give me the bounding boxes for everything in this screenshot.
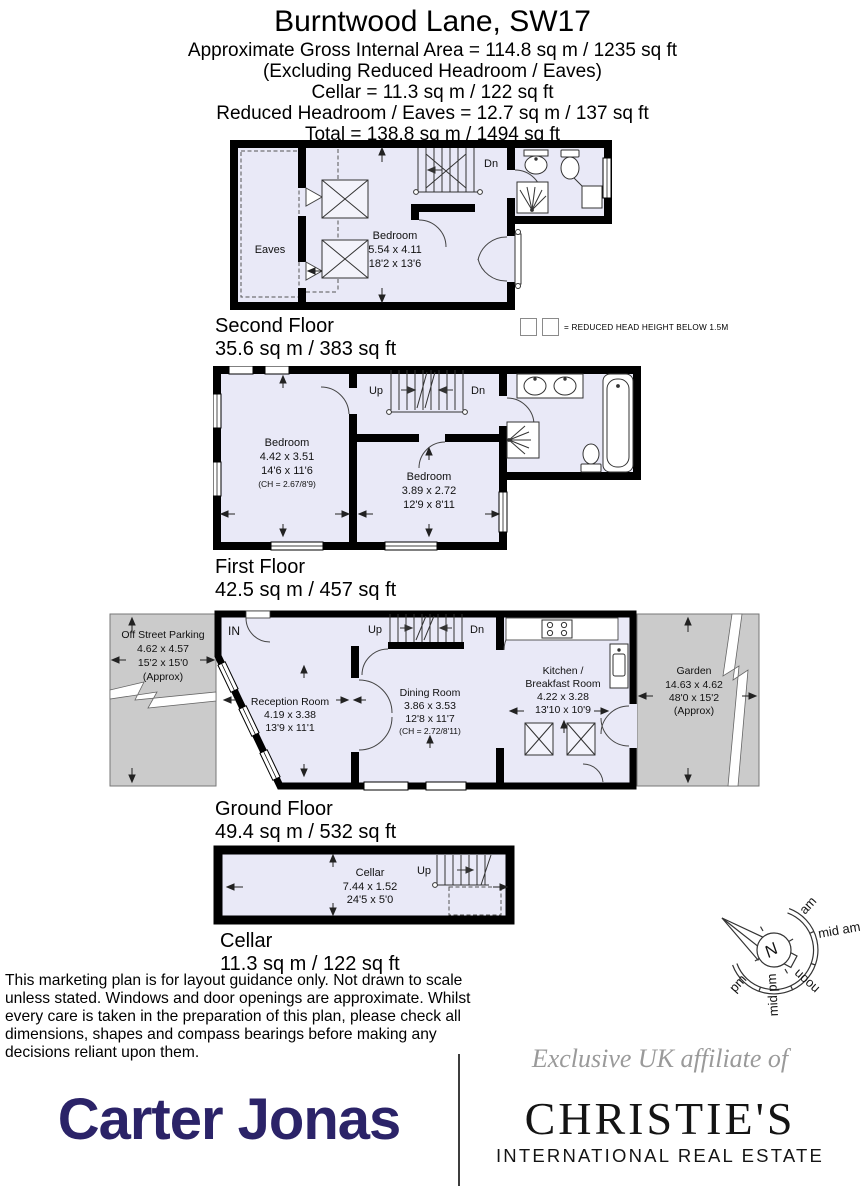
room-name: Reception Room	[251, 696, 329, 708]
room-name: Bedroom	[407, 471, 452, 483]
floor-area: 35.6 sq m / 383 sq ft	[215, 338, 396, 361]
floor-area: 49.4 sq m / 532 sq ft	[215, 821, 396, 844]
room-name: Bedroom	[265, 437, 310, 449]
compass-rose: N am mid am noon mid pm pm	[712, 872, 865, 1034]
stairs-up-label: Up	[368, 624, 382, 636]
header-cellar-area: Cellar = 11.3 sq m / 122 sq ft	[0, 82, 865, 104]
skylight-box	[322, 240, 368, 278]
second-floor-plan: Dn	[230, 140, 612, 312]
floorplan-page: Burntwood Lane, SW17 Approximate Gross I…	[0, 0, 865, 1200]
room-dim-metric: 4.19 x 3.38	[264, 709, 316, 721]
second-floor-caption: Second Floor 35.6 sq m / 383 sq ft	[215, 315, 396, 361]
compass-noon-label: noon	[790, 966, 822, 996]
floor-name: First Floor	[215, 556, 396, 579]
room-name-2: Breakfast Room	[525, 678, 601, 690]
stairs-dn-label: Dn	[471, 385, 485, 397]
first-floor-plan: Up Dn	[213, 366, 641, 552]
room-name: Cellar	[356, 867, 385, 879]
christies-affiliate-text: Exclusive UK affiliate of	[460, 1044, 860, 1074]
compass-midam-label: mid am	[817, 919, 862, 941]
parking-name: Off Street Parking	[121, 629, 204, 641]
shower-icon	[507, 422, 539, 458]
room-ceiling-height: (CH = 2.72/8'11)	[399, 726, 461, 736]
room-dim-metric: 5.54 x 4.11	[368, 244, 422, 256]
stairs-up-label: Up	[369, 385, 383, 397]
room-dim-imperial: 24'5 x 5'0	[347, 894, 393, 906]
room-name: Kitchen /	[543, 665, 584, 677]
floor-name: Cellar	[220, 930, 400, 953]
header-reduced-area: Reduced Headroom / Eaves = 12.7 sq m / 1…	[0, 103, 865, 125]
room-dim-metric: 3.89 x 2.72	[402, 485, 456, 497]
eaves-label: Eaves	[255, 244, 286, 256]
cellar-plan: Up Cellar 7.44 x 1.52 24'5 x 5'0	[213, 845, 515, 925]
disclaimer-text: This marketing plan is for layout guidan…	[5, 972, 473, 1062]
shower-icon	[517, 182, 548, 213]
parking-dim-metric: 4.62 x 4.57	[137, 643, 189, 655]
room-dim-imperial: 14'6 x 11'6	[261, 465, 313, 477]
room-dim-metric: 3.86 x 3.53	[404, 700, 456, 712]
reduced-head-height-legend: = REDUCED HEAD HEIGHT BELOW 1.5M	[520, 318, 728, 336]
garden-dim-metric: 14.63 x 4.62	[665, 679, 723, 691]
room-dim-imperial: 18'2 x 13'6	[369, 258, 422, 270]
skylight-box	[525, 723, 553, 755]
bathtub-icon	[603, 374, 633, 472]
kitchen-sink-icon	[610, 644, 628, 688]
skylight-box	[567, 723, 595, 755]
stairs-dn-label: Dn	[484, 158, 498, 170]
double-sink-icon	[517, 374, 583, 398]
carter-jonas-logo: Carter Jonas	[0, 1086, 458, 1153]
legend-label: = REDUCED HEAD HEIGHT BELOW 1.5M	[564, 323, 728, 332]
header-excluding: (Excluding Reduced Headroom / Eaves)	[0, 61, 865, 83]
legend-box-icon	[520, 318, 537, 336]
room-dim-imperial: 12'8 x 11'7	[405, 713, 455, 725]
compass-midpm-label: mid pm	[764, 973, 781, 1016]
garden-dim-imperial: 48'0 x 15'2	[669, 692, 719, 704]
skylight-box	[322, 180, 368, 218]
room-name: Dining Room	[400, 687, 461, 699]
off-street-parking-area: Off Street Parking 4.62 x 4.57 15'2 x 15…	[110, 614, 216, 786]
room-dim-imperial: 12'9 x 8'11	[403, 499, 455, 511]
legend-box-icon	[542, 318, 559, 336]
garden-name: Garden	[676, 665, 711, 677]
cellar-caption: Cellar 11.3 sq m / 122 sq ft	[220, 930, 400, 976]
header-gross-area: Approximate Gross Internal Area = 114.8 …	[0, 40, 865, 62]
garden-approx: (Approx)	[674, 705, 714, 717]
parking-approx: (Approx)	[143, 671, 183, 683]
room-name: Bedroom	[373, 230, 418, 242]
parking-dim-imperial: 15'2 x 15'0	[138, 657, 188, 669]
page-title: Burntwood Lane, SW17	[0, 5, 865, 39]
stairs-dn-label: Dn	[470, 624, 484, 636]
first-floor-caption: First Floor 42.5 sq m / 457 sq ft	[215, 556, 396, 602]
room-ceiling-height: (CH = 2.67/8'9)	[258, 479, 316, 489]
christies-logo: CHRISTIE'S	[460, 1092, 860, 1145]
room-dim-metric: 4.42 x 3.51	[260, 451, 314, 463]
entrance-in-label: IN	[228, 624, 240, 638]
room-dim-imperial: 13'9 x 11'1	[265, 722, 315, 734]
stairs-up-label: Up	[417, 865, 431, 877]
ground-floor-caption: Ground Floor 49.4 sq m / 532 sq ft	[215, 798, 396, 844]
ground-floor-plan: Off Street Parking 4.62 x 4.57 15'2 x 15…	[108, 608, 763, 794]
floor-name: Second Floor	[215, 315, 396, 338]
christies-logo-subtitle: INTERNATIONAL REAL ESTATE	[460, 1145, 860, 1167]
floor-area: 42.5 sq m / 457 sq ft	[215, 579, 396, 602]
compass-pm-label: pm	[726, 972, 749, 995]
room-dim-metric: 7.44 x 1.52	[343, 881, 397, 893]
front-door	[246, 611, 270, 618]
room-dim-imperial: 13'10 x 10'9	[535, 704, 591, 716]
toilet-icon	[581, 444, 601, 472]
sink-icon	[524, 150, 548, 174]
stove-icon	[542, 620, 572, 638]
garden-area: Garden 14.63 x 4.62 48'0 x 15'2 (Approx)	[637, 614, 759, 786]
room-dim-metric: 4.22 x 3.28	[537, 691, 589, 703]
toilet-icon	[561, 150, 579, 179]
floor-name: Ground Floor	[215, 798, 396, 821]
